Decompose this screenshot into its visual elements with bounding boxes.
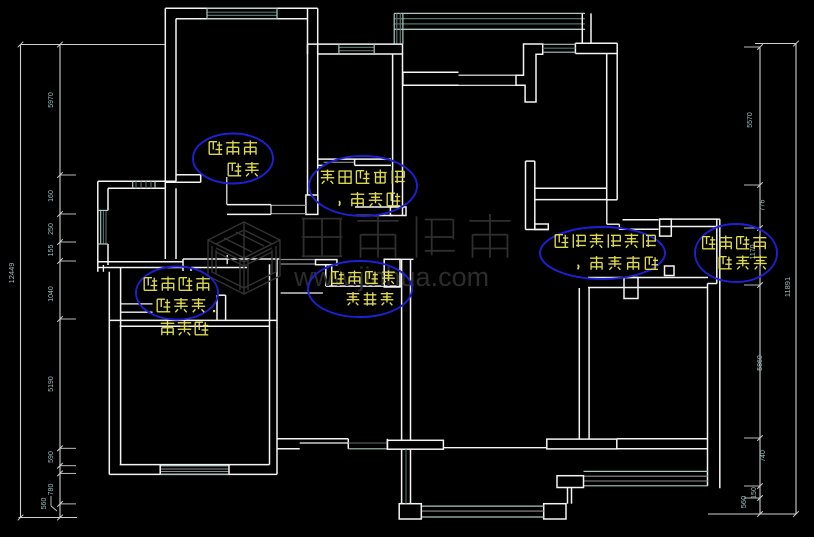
svg-text:12449: 12449 [7, 263, 16, 284]
svg-text:560: 560 [41, 498, 48, 510]
svg-text:250: 250 [48, 223, 55, 235]
svg-text:150: 150 [751, 487, 758, 499]
svg-text:740: 740 [760, 450, 767, 462]
svg-text:5860: 5860 [757, 355, 764, 371]
svg-text:776: 776 [760, 200, 767, 212]
svg-text:590: 590 [48, 451, 55, 463]
svg-text:560: 560 [739, 496, 748, 509]
svg-text:11891: 11891 [783, 277, 792, 297]
svg-text:155: 155 [48, 245, 55, 257]
svg-text:5970: 5970 [48, 92, 55, 108]
svg-text:5190: 5190 [48, 376, 55, 392]
svg-text:5570: 5570 [747, 112, 754, 128]
svg-text:160: 160 [48, 190, 55, 202]
svg-text:780: 780 [48, 484, 55, 496]
svg-text:1040: 1040 [48, 286, 55, 302]
